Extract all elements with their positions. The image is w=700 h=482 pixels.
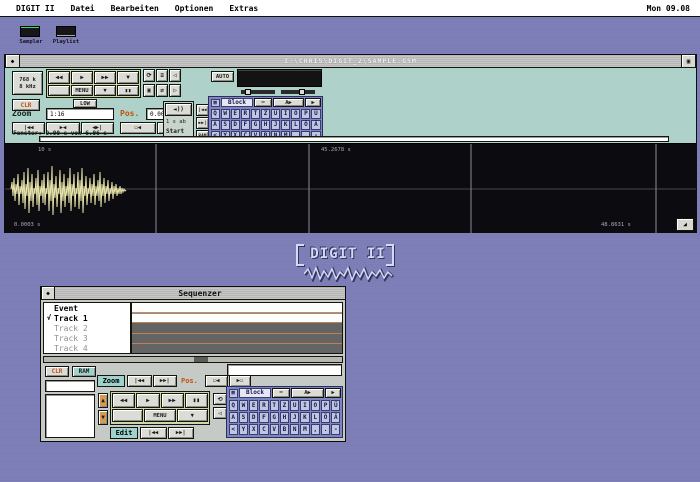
pos-button[interactable]: ▭◀ — [205, 375, 228, 387]
keyboard-key[interactable]: H — [261, 120, 270, 130]
zoom-buttons: |◀◀▶▶| — [127, 375, 177, 387]
transport-row-2: MENU▼▮▮ — [48, 85, 139, 96]
autoplay-button[interactable]: A▶ — [291, 388, 324, 398]
ram-button[interactable]: RAM — [72, 366, 96, 377]
transport-button[interactable]: ▼ — [94, 85, 116, 96]
keyboard-key[interactable]: Ä — [331, 412, 340, 423]
keyboard-key[interactable]: K — [300, 412, 309, 423]
tool-icon-button[interactable]: ◁ — [169, 69, 181, 82]
edit-button[interactable]: ▶▶| — [168, 427, 195, 439]
keyboard-key[interactable]: S — [239, 412, 248, 423]
keyboard-key[interactable]: Y — [239, 424, 248, 435]
desktop: DIGIT IIDateiBearbeitenOptionenExtras Mo… — [0, 0, 700, 482]
keyboard-row: ASDFGHJKLÖÄ — [228, 411, 341, 423]
sample-window-titlebar: ◆ I:\CHRIS\DIGIT_2\SAMPLE.GSM ▣ — [5, 55, 696, 68]
keyboard-row: ASDFGHJKLÖÄ — [210, 119, 321, 130]
keyboard-key[interactable]: < — [229, 424, 238, 435]
sample-info-box: 768 k 8 kHz — [12, 71, 43, 95]
track-lanes — [131, 302, 343, 354]
tool-icon-button[interactable]: ▷ — [169, 84, 181, 97]
lcd-slider[interactable] — [281, 90, 315, 94]
lane-track-1[interactable] — [132, 313, 342, 323]
keyboard-key[interactable]: - — [331, 424, 340, 435]
keyboard-key[interactable]: Ü — [331, 400, 340, 411]
transport-button[interactable]: ▶ — [71, 71, 93, 84]
scrollbar-handle[interactable] — [194, 357, 208, 362]
autoplay-button[interactable]: A▶ — [273, 98, 304, 107]
start-line: 1 s ab — [166, 119, 193, 125]
lane-track-3[interactable] — [132, 334, 342, 343]
keyboard-key[interactable]: , — [311, 424, 320, 435]
transport-button[interactable]: ◀◀ — [48, 71, 70, 84]
auto-button[interactable]: AUTO — [211, 71, 234, 82]
sample-tool-grid: ⟳≡◁▣⇄▷ — [143, 69, 184, 98]
menu-item[interactable]: Extras — [229, 4, 258, 13]
keyboard-key[interactable]: N — [290, 424, 299, 435]
sample-size: 768 k — [19, 77, 36, 83]
tool-icon-button[interactable]: ≡ — [156, 69, 168, 82]
transport-button[interactable]: ▶▶ — [161, 393, 184, 408]
keyboard-key[interactable]: G — [251, 120, 260, 130]
digit-logo: DIGIT II — [296, 242, 400, 282]
keyboard-key[interactable]: X — [249, 424, 258, 435]
keyboard-key[interactable]: R — [241, 109, 250, 119]
menu-item[interactable]: DIGIT II — [16, 4, 55, 13]
keyboard-key[interactable]: L — [311, 412, 320, 423]
keyboard-row: <YXCVBNM,.- — [228, 423, 341, 435]
tool-icon-button[interactable]: ◁ — [213, 407, 227, 419]
transport-button[interactable] — [48, 85, 70, 96]
lcd-display — [237, 69, 322, 87]
keyboard-key[interactable]: M — [300, 424, 309, 435]
keyboard-key[interactable]: O — [291, 109, 300, 119]
track-label: Event — [54, 304, 78, 313]
transport-button[interactable]: MENU — [144, 409, 175, 422]
sample-rate: 8 kHz — [19, 84, 36, 90]
track-label: Track 1 — [54, 314, 88, 323]
keyboard-key[interactable]: J — [271, 120, 280, 130]
keyboard-key[interactable]: Ö — [321, 412, 330, 423]
menu-items: DIGIT IIDateiBearbeitenOptionenExtras — [16, 4, 258, 13]
keyboard-key[interactable]: T — [270, 400, 279, 411]
lane-track-4[interactable] — [132, 344, 342, 353]
zoom-value[interactable]: 1:16 — [46, 108, 114, 120]
keyboard-key[interactable]: L — [291, 120, 300, 130]
transport-button[interactable]: ▶ — [136, 393, 159, 408]
keyboard-key[interactable]: I — [281, 109, 290, 119]
transport-row-2: MENU▼ — [112, 409, 208, 422]
keyboard-key[interactable]: A — [229, 412, 238, 423]
transport-button[interactable]: ▮▮ — [185, 393, 208, 408]
edit-buttons: |◀◀▶▶| — [140, 427, 194, 439]
keyboard-key[interactable]: P — [301, 109, 310, 119]
lane-track-2[interactable] — [132, 324, 342, 333]
fuller-box-icon[interactable]: ▣ — [681, 54, 696, 68]
close-box-icon[interactable]: ◆ — [41, 286, 55, 300]
edit-button[interactable]: |◀◀ — [140, 427, 167, 439]
keyboard-key[interactable]: Z — [280, 400, 289, 411]
octave-down-button[interactable]: ▼ — [98, 410, 108, 425]
track-item-1[interactable]: √ Track 1 — [44, 313, 130, 323]
sequencer-list[interactable] — [45, 394, 95, 438]
keyboard-key[interactable]: . — [321, 424, 330, 435]
sample-transport: ◀◀▶▶▶▼ MENU▼▮▮ — [46, 69, 141, 98]
track-label: Track 3 — [54, 334, 88, 343]
keyboard-key[interactable]: P — [321, 400, 330, 411]
logo-bracket-left — [296, 244, 304, 266]
keyboard-key[interactable]: T — [251, 109, 260, 119]
keyboard-key[interactable]: A — [211, 120, 220, 130]
menu-clock: Mon 09.08 — [647, 4, 690, 13]
keyboard-key[interactable]: U — [290, 400, 299, 411]
waveform — [5, 144, 696, 233]
keyboard-key[interactable]: F — [241, 120, 250, 130]
wave-label-bottomleft: 0.0003 s — [14, 222, 41, 228]
keyboard-key[interactable]: U — [271, 109, 280, 119]
pos-label: Pos. — [181, 375, 205, 387]
keyboard-key[interactable]: Z — [261, 109, 270, 119]
edit-label: Edit — [110, 427, 138, 439]
zoom-label: Zoom — [12, 109, 48, 121]
desktop-icon-label: Playlist — [48, 39, 84, 45]
tool-icon-button[interactable]: ⟲ — [213, 393, 227, 405]
slider-handle[interactable] — [299, 89, 305, 95]
transport-row-1: ◀◀▶▶▶▮▮ — [112, 393, 208, 408]
keymap-icon-button[interactable]: ⌨ — [272, 388, 290, 398]
zoom-button[interactable]: ▶▶| — [153, 375, 178, 387]
logo-waveform-icon — [304, 266, 396, 282]
track-item-3[interactable]: Track 3 — [44, 333, 130, 343]
sequencer-title: Sequenzer — [55, 289, 345, 298]
zoom-button[interactable]: |◀◀ — [127, 375, 152, 387]
keyboard-key[interactable]: D — [231, 120, 240, 130]
keyboard-key[interactable]: E — [231, 109, 240, 119]
keyboard-key[interactable]: V — [270, 424, 279, 435]
keyboard-key[interactable]: Ü — [311, 109, 320, 119]
zoom-label: Zoom — [97, 375, 125, 387]
desktop-icon-label: Sampler — [14, 39, 48, 45]
keyboard-key[interactable]: Q — [211, 109, 220, 119]
keyboard-key[interactable]: D — [249, 412, 258, 423]
transport-button[interactable]: ▮▮ — [117, 85, 139, 96]
sequencer-field[interactable] — [45, 380, 95, 392]
track-item-2[interactable]: Track 2 — [44, 323, 130, 333]
block-label: Block — [239, 388, 271, 398]
sequencer-titlebar: ◆ Sequenzer — [41, 287, 345, 300]
wave-label-topleft: 10 s — [38, 147, 51, 153]
tool-icon-button[interactable]: ▣ — [143, 84, 155, 97]
sample-window-title: I:\CHRIS\DIGIT_2\SAMPLE.GSM — [20, 57, 681, 65]
keyboard-key[interactable]: F — [259, 412, 268, 423]
track-check: √ — [44, 314, 54, 322]
keyboard-key[interactable]: Q — [229, 400, 238, 411]
low-button[interactable]: LOW — [73, 99, 97, 108]
transport-button[interactable]: ◀◀ — [112, 393, 135, 408]
play-key-button[interactable]: ▶ — [325, 388, 341, 398]
transport-button[interactable]: ▶▶ — [94, 71, 116, 84]
keyboard-key[interactable]: R — [259, 400, 268, 411]
tool-icon-button[interactable]: ⟳ — [143, 69, 155, 82]
keymap-icon-button[interactable]: ⌨ — [254, 98, 272, 107]
keyboard-key[interactable]: J — [290, 412, 299, 423]
close-box-icon[interactable]: ◆ — [5, 54, 20, 68]
track-label: Track 2 — [54, 324, 88, 333]
waveform-display[interactable]: 10 s 45.2678 s 0.0003 s 48.8631 s ◢ — [5, 143, 696, 232]
pos-label: Pos. — [120, 109, 146, 121]
keyboard-key[interactable]: W — [239, 400, 248, 411]
menu-item[interactable]: Optionen — [175, 4, 214, 13]
block-label: Block — [221, 98, 253, 107]
desktop-icon-sampler[interactable]: Sampler — [14, 26, 48, 48]
keyboard-key[interactable]: Ö — [301, 120, 310, 130]
clear-button[interactable]: CLR — [45, 366, 69, 377]
sequencer-transport: ◀◀▶▶▶▮▮ MENU▼ — [110, 391, 210, 425]
speaker-button[interactable]: ◄)) — [165, 103, 192, 116]
sequencer-scrollbar[interactable] — [43, 356, 343, 363]
keyboard-row: QWERTZUIOPÜ — [210, 108, 321, 119]
track-item-4[interactable]: Track 4 — [44, 343, 130, 353]
keyboard-key[interactable]: W — [221, 109, 230, 119]
track-item-event[interactable]: Event — [44, 303, 130, 313]
sample-window: ◆ I:\CHRIS\DIGIT_2\SAMPLE.GSM ▣ 768 k 8 … — [4, 54, 697, 233]
keyboard-key[interactable]: S — [221, 120, 230, 130]
sequencer-keyboard-block: ▦ Block ⌨ A▶ ▶ QWERTZUIOPÜ ASDFGHJKLÖÄ <… — [226, 386, 343, 438]
logo-title: DIGIT II — [306, 246, 390, 262]
keyboard-key[interactable]: B — [280, 424, 289, 435]
transport-button[interactable] — [112, 409, 143, 422]
keyboard-key[interactable]: C — [259, 424, 268, 435]
menu-item[interactable]: Datei — [71, 4, 95, 13]
keyboard-key[interactable]: I — [300, 400, 309, 411]
sample-control-panel: 768 k 8 kHz CLR ◀◀▶▶▶▼ MENU▼▮▮ ⟳≡◁▣⇄▷ LO… — [5, 68, 696, 143]
track-label: Track 4 — [54, 344, 88, 353]
octave-up-button[interactable]: ▲ — [98, 393, 108, 408]
transport-button[interactable]: ▼ — [177, 409, 208, 422]
keyboard-key[interactable]: K — [281, 120, 290, 130]
wave-label-bottomright: 48.8631 s — [601, 222, 631, 228]
block-grid-icon[interactable]: ▦ — [211, 99, 220, 107]
menu-item[interactable]: Bearbeiten — [111, 4, 159, 13]
keyboard-key[interactable]: H — [280, 412, 289, 423]
sample-scrollbar[interactable] — [39, 136, 669, 142]
transport-button[interactable]: MENU — [71, 85, 93, 96]
play-key-button[interactable]: ▶ — [305, 98, 321, 107]
lane-event[interactable] — [132, 303, 342, 313]
sequencer-window: ◆ Sequenzer Event √ Track 1 Track 2 Trac… — [40, 286, 346, 442]
lcd-slider[interactable] — [241, 90, 275, 94]
menu-bar: DIGIT IIDateiBearbeitenOptionenExtras Mo… — [0, 0, 700, 17]
keyboard-key[interactable]: Ä — [311, 120, 320, 130]
track-list: Event √ Track 1 Track 2 Track 3 Track 4 — [43, 302, 131, 354]
wave-label-topmid: 45.2678 s — [321, 147, 351, 153]
keyboard-key[interactable]: E — [249, 400, 258, 411]
sampler-icon — [20, 26, 40, 37]
desktop-icon-playlist[interactable]: Playlist — [48, 26, 84, 48]
keyboard-row: QWERTZUIOPÜ — [228, 399, 341, 411]
resize-box-icon[interactable]: ◢ — [676, 218, 694, 231]
transport-row-1: ◀◀▶▶▶▼ — [48, 71, 139, 84]
keyboard-key[interactable]: G — [270, 412, 279, 423]
keyboard-key[interactable]: O — [311, 400, 320, 411]
block-grid-icon[interactable]: ▦ — [229, 389, 238, 398]
tool-icon-button[interactable]: ⇄ — [156, 84, 168, 97]
transport-button[interactable]: ▼ — [117, 71, 139, 84]
playlist-icon — [56, 26, 76, 37]
slider-handle[interactable] — [245, 89, 251, 95]
